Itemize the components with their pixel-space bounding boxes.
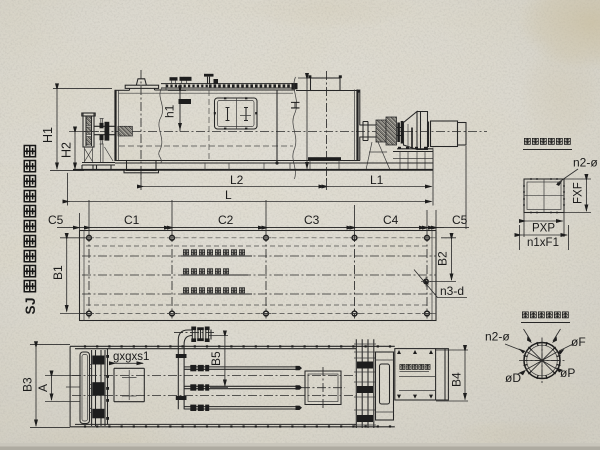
svg-text:PXP: PXP: [532, 223, 555, 235]
svg-text:øF: øF: [571, 335, 586, 349]
svg-text:H1: H1: [41, 127, 55, 143]
svg-text:n3-d: n3-d: [440, 284, 464, 298]
svg-text:SJ: SJ: [23, 297, 38, 315]
svg-text:B1: B1: [51, 265, 65, 280]
svg-text:B4: B4: [450, 372, 464, 387]
svg-text:C3: C3: [304, 213, 320, 227]
svg-text:L: L: [225, 188, 232, 202]
svg-text:FXF: FXF: [573, 182, 585, 204]
svg-text:H: H: [289, 101, 303, 110]
svg-text:C1: C1: [124, 213, 140, 227]
svg-text:C2: C2: [218, 213, 234, 227]
svg-text:n1xF1: n1xF1: [527, 237, 559, 249]
svg-text:L2: L2: [230, 173, 244, 187]
svg-text:A: A: [36, 384, 50, 392]
svg-text:n2-ø: n2-ø: [485, 330, 510, 344]
svg-text:C5: C5: [48, 213, 64, 227]
svg-text:B5: B5: [209, 351, 223, 366]
svg-text:B2: B2: [436, 251, 450, 266]
svg-text:C5: C5: [452, 213, 468, 227]
svg-text:øP: øP: [560, 366, 575, 380]
svg-text:L1: L1: [370, 173, 384, 187]
svg-text:h1: h1: [163, 104, 177, 118]
svg-text:n2-ø: n2-ø: [573, 156, 598, 170]
svg-text:B3: B3: [21, 377, 35, 392]
svg-text:H2: H2: [60, 142, 74, 158]
svg-text:gxgxs1: gxgxs1: [113, 351, 149, 363]
svg-text:C4: C4: [383, 213, 399, 227]
